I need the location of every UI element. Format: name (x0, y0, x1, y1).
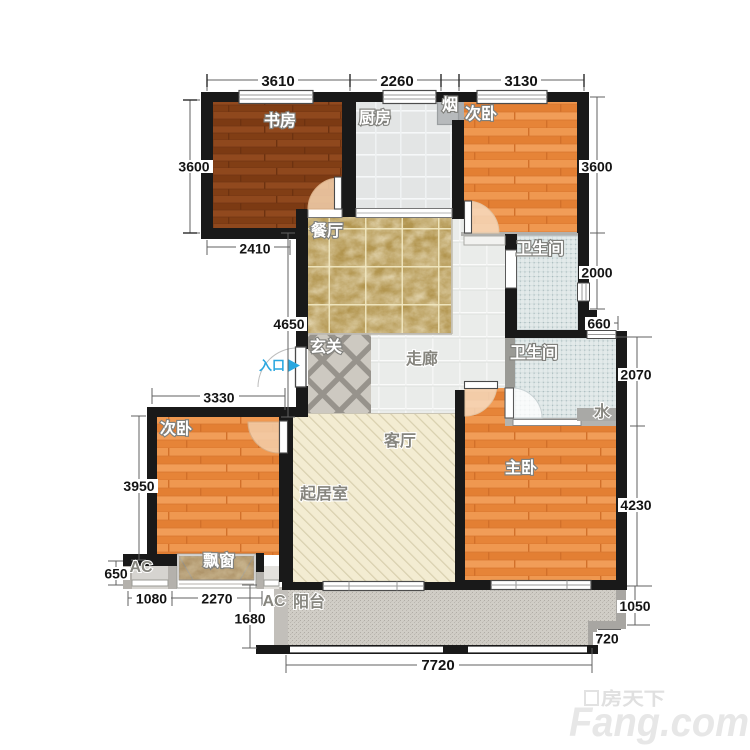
svg-text:1680: 1680 (234, 611, 265, 627)
svg-text:烟: 烟 (442, 95, 458, 114)
svg-text:7720: 7720 (421, 657, 454, 674)
svg-text:1050: 1050 (619, 598, 650, 614)
svg-text:1080: 1080 (136, 591, 167, 607)
svg-text:次卧: 次卧 (160, 419, 192, 438)
svg-text:2070: 2070 (620, 367, 651, 383)
svg-text:玄关: 玄关 (310, 337, 342, 356)
svg-text:3130: 3130 (504, 73, 537, 90)
svg-text:4650: 4650 (273, 316, 304, 332)
svg-text:3610: 3610 (261, 73, 294, 90)
svg-text:卫生间: 卫生间 (510, 343, 558, 362)
svg-text:入口: 入口 (259, 358, 285, 373)
svg-text:Fang.com: Fang.com (569, 699, 749, 745)
svg-text:水: 水 (594, 402, 611, 421)
svg-text:AC: AC (129, 559, 153, 576)
svg-text:660: 660 (587, 316, 611, 332)
svg-text:AC: AC (262, 593, 286, 610)
svg-text:2270: 2270 (201, 591, 232, 607)
svg-text:厨房: 厨房 (359, 108, 391, 127)
svg-text:2000: 2000 (581, 265, 612, 281)
svg-text:阳台: 阳台 (293, 592, 325, 611)
svg-text:主卧: 主卧 (505, 458, 537, 477)
svg-text:650: 650 (104, 566, 128, 582)
svg-text:起居室: 起居室 (299, 484, 348, 503)
svg-text:卫生间: 卫生间 (516, 239, 564, 258)
svg-text:3600: 3600 (581, 159, 612, 175)
svg-text:720: 720 (595, 631, 619, 647)
svg-text:书房: 书房 (264, 111, 296, 130)
svg-text:3330: 3330 (203, 390, 234, 406)
svg-text:飘窗: 飘窗 (203, 551, 235, 570)
svg-text:客厅: 客厅 (384, 431, 416, 450)
svg-text:3950: 3950 (123, 478, 154, 494)
svg-text:餐厅: 餐厅 (310, 221, 343, 240)
svg-text:走廊: 走廊 (405, 349, 438, 368)
svg-text:2260: 2260 (380, 73, 413, 90)
svg-text:4230: 4230 (620, 497, 651, 513)
svg-text:3600: 3600 (178, 159, 209, 175)
svg-text:2410: 2410 (239, 241, 270, 257)
svg-text:次卧: 次卧 (465, 104, 497, 123)
